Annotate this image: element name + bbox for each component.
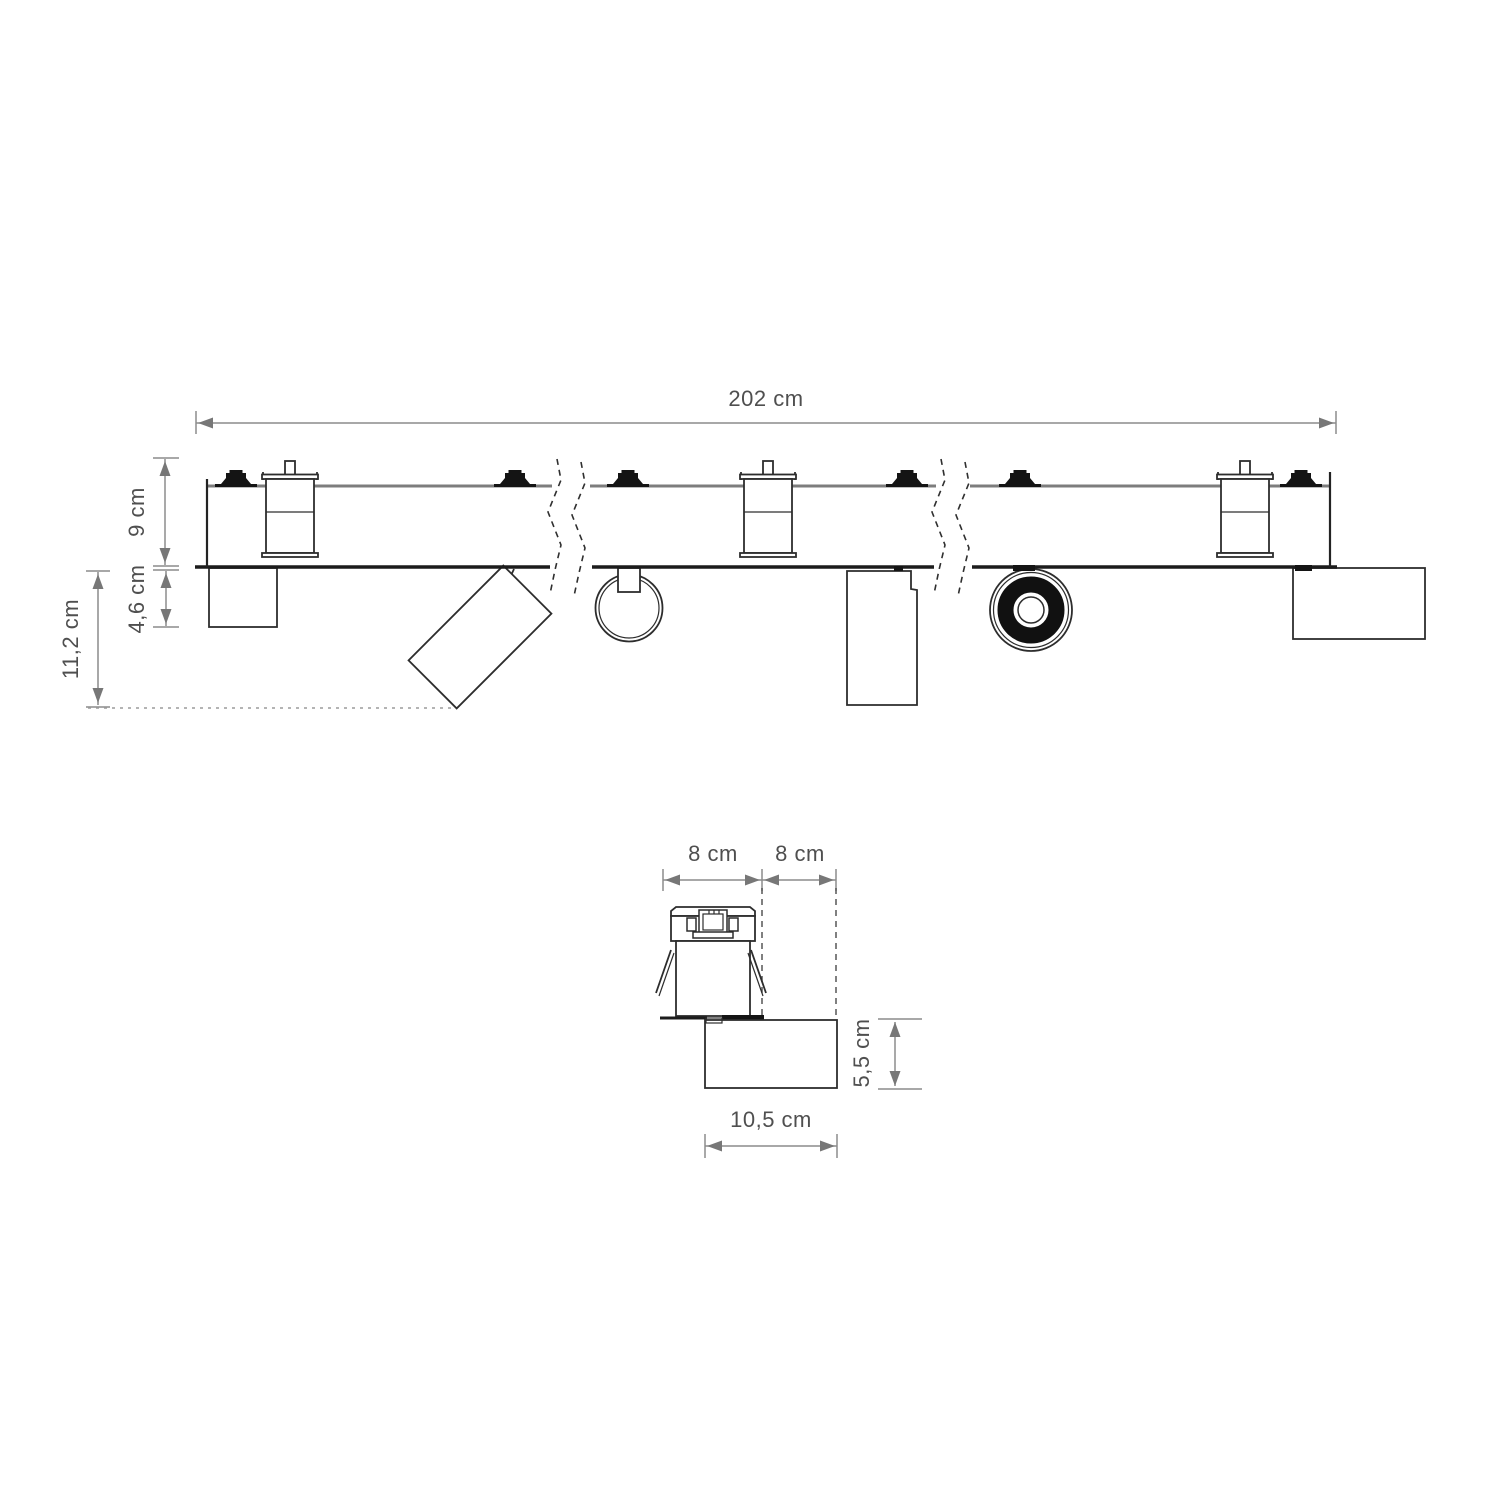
arrowhead-left-icon: [665, 875, 680, 886]
dim-label-track-height: 9 cm: [124, 487, 149, 537]
dim-label-base-depth: 4,6 cm: [124, 564, 149, 633]
mounting-clip: [607, 470, 649, 487]
power-adapter: [1217, 461, 1273, 557]
arrowhead-down-icon: [93, 688, 104, 703]
round-downlight-fixture: [990, 569, 1072, 651]
dim-label-total-depth: 11,2 cm: [58, 599, 83, 679]
linear-pendant-fixture: [847, 571, 917, 705]
spring-clip: [656, 950, 671, 993]
dimension-head-width: 10,5 cm: [705, 1107, 837, 1158]
mounting-clip: [494, 470, 536, 487]
drawing-canvas: 202 cm: [0, 0, 1500, 1500]
spot-box-fixture: [209, 568, 277, 627]
arrowhead-down-icon: [161, 609, 172, 624]
detail-view: 8 cm 8 cm: [656, 841, 922, 1158]
spring-clip: [751, 950, 766, 993]
dim-label-head-width: 10,5 cm: [730, 1107, 812, 1132]
power-adapters: [262, 461, 1273, 557]
pendant-ring-fixture: [596, 568, 663, 642]
main-body: [676, 941, 750, 1016]
mounting-clip: [215, 470, 257, 487]
dim-label-recess-right: 8 cm: [775, 841, 825, 866]
arrowhead-up-icon: [160, 461, 171, 476]
dim-label-recess-left: 8 cm: [688, 841, 738, 866]
mount-tab: [894, 566, 903, 571]
dimension-base-depth: 4,6 cm: [124, 564, 179, 633]
mounting-clip: [886, 470, 928, 487]
arrowhead-left-icon: [707, 1141, 722, 1152]
arrowhead-right-icon: [745, 875, 760, 886]
break-mark: [932, 459, 969, 596]
arrowhead-up-icon: [890, 1022, 901, 1037]
dim-label-head-height: 5,5 cm: [849, 1018, 874, 1087]
mounting-clip: [1280, 470, 1322, 487]
break-mark: [548, 459, 585, 596]
mounting-clip: [999, 470, 1041, 487]
dimension-length: 202 cm: [196, 386, 1336, 434]
angled-spot-fixture: [409, 566, 552, 709]
side-view: 202 cm: [58, 386, 1425, 708]
spot-head: [705, 1018, 837, 1088]
arrowhead-right-icon: [819, 875, 834, 886]
dimension-drawing: 202 cm: [0, 0, 1500, 1500]
arrowhead-right-icon: [1319, 418, 1334, 429]
power-adapter: [740, 461, 796, 557]
arrowhead-left-icon: [198, 418, 213, 429]
dimension-track-height: 9 cm: [124, 458, 179, 566]
pendant-mount: [618, 568, 640, 592]
arrowhead-down-icon: [160, 548, 171, 563]
arrowhead-up-icon: [161, 573, 172, 588]
dimension-head-height: 5,5 cm: [849, 1018, 922, 1089]
fixture-cross-section: [656, 907, 766, 1020]
dim-label-length: 202 cm: [728, 386, 803, 411]
arrowhead-down-icon: [890, 1071, 901, 1086]
surface-fixtures: [209, 566, 1425, 709]
power-adapter: [262, 461, 318, 557]
arrowhead-right-icon: [820, 1141, 835, 1152]
arrowhead-left-icon: [764, 875, 779, 886]
mount-tab: [1295, 565, 1312, 571]
end-spot-fixture: [1293, 568, 1425, 639]
arrowhead-up-icon: [93, 574, 104, 589]
mount-tab: [1013, 565, 1035, 571]
